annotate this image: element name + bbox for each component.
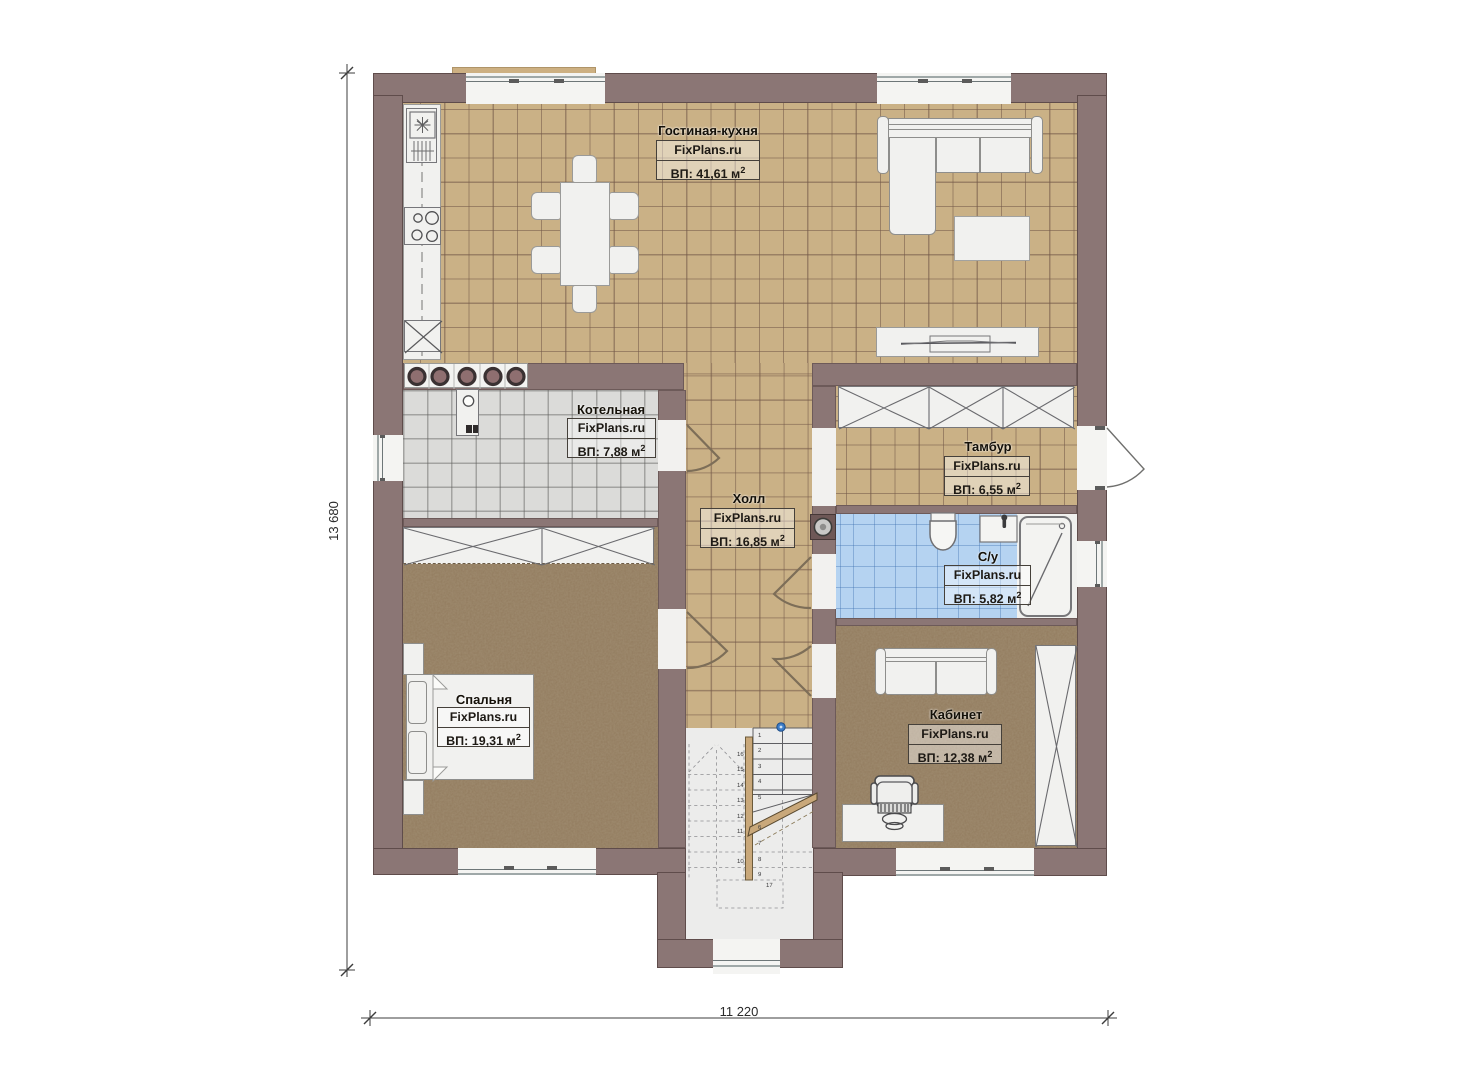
svg-text:10: 10 <box>737 858 744 865</box>
svg-text:16: 16 <box>737 751 744 758</box>
svg-text:3: 3 <box>758 763 762 770</box>
svg-text:11 220: 11 220 <box>720 1004 759 1019</box>
svg-text:4: 4 <box>758 778 762 785</box>
svg-text:2: 2 <box>758 747 762 754</box>
svg-text:17: 17 <box>766 882 773 889</box>
svg-text:15: 15 <box>737 766 744 773</box>
svg-text:11: 11 <box>737 828 744 835</box>
svg-text:5: 5 <box>758 794 762 801</box>
svg-text:8: 8 <box>758 856 762 863</box>
svg-text:1: 1 <box>758 732 762 739</box>
svg-text:9: 9 <box>758 871 762 878</box>
svg-text:14: 14 <box>737 782 744 789</box>
svg-text:12: 12 <box>737 813 744 820</box>
svg-text:13 680: 13 680 <box>326 501 341 541</box>
svg-text:13: 13 <box>737 797 744 804</box>
